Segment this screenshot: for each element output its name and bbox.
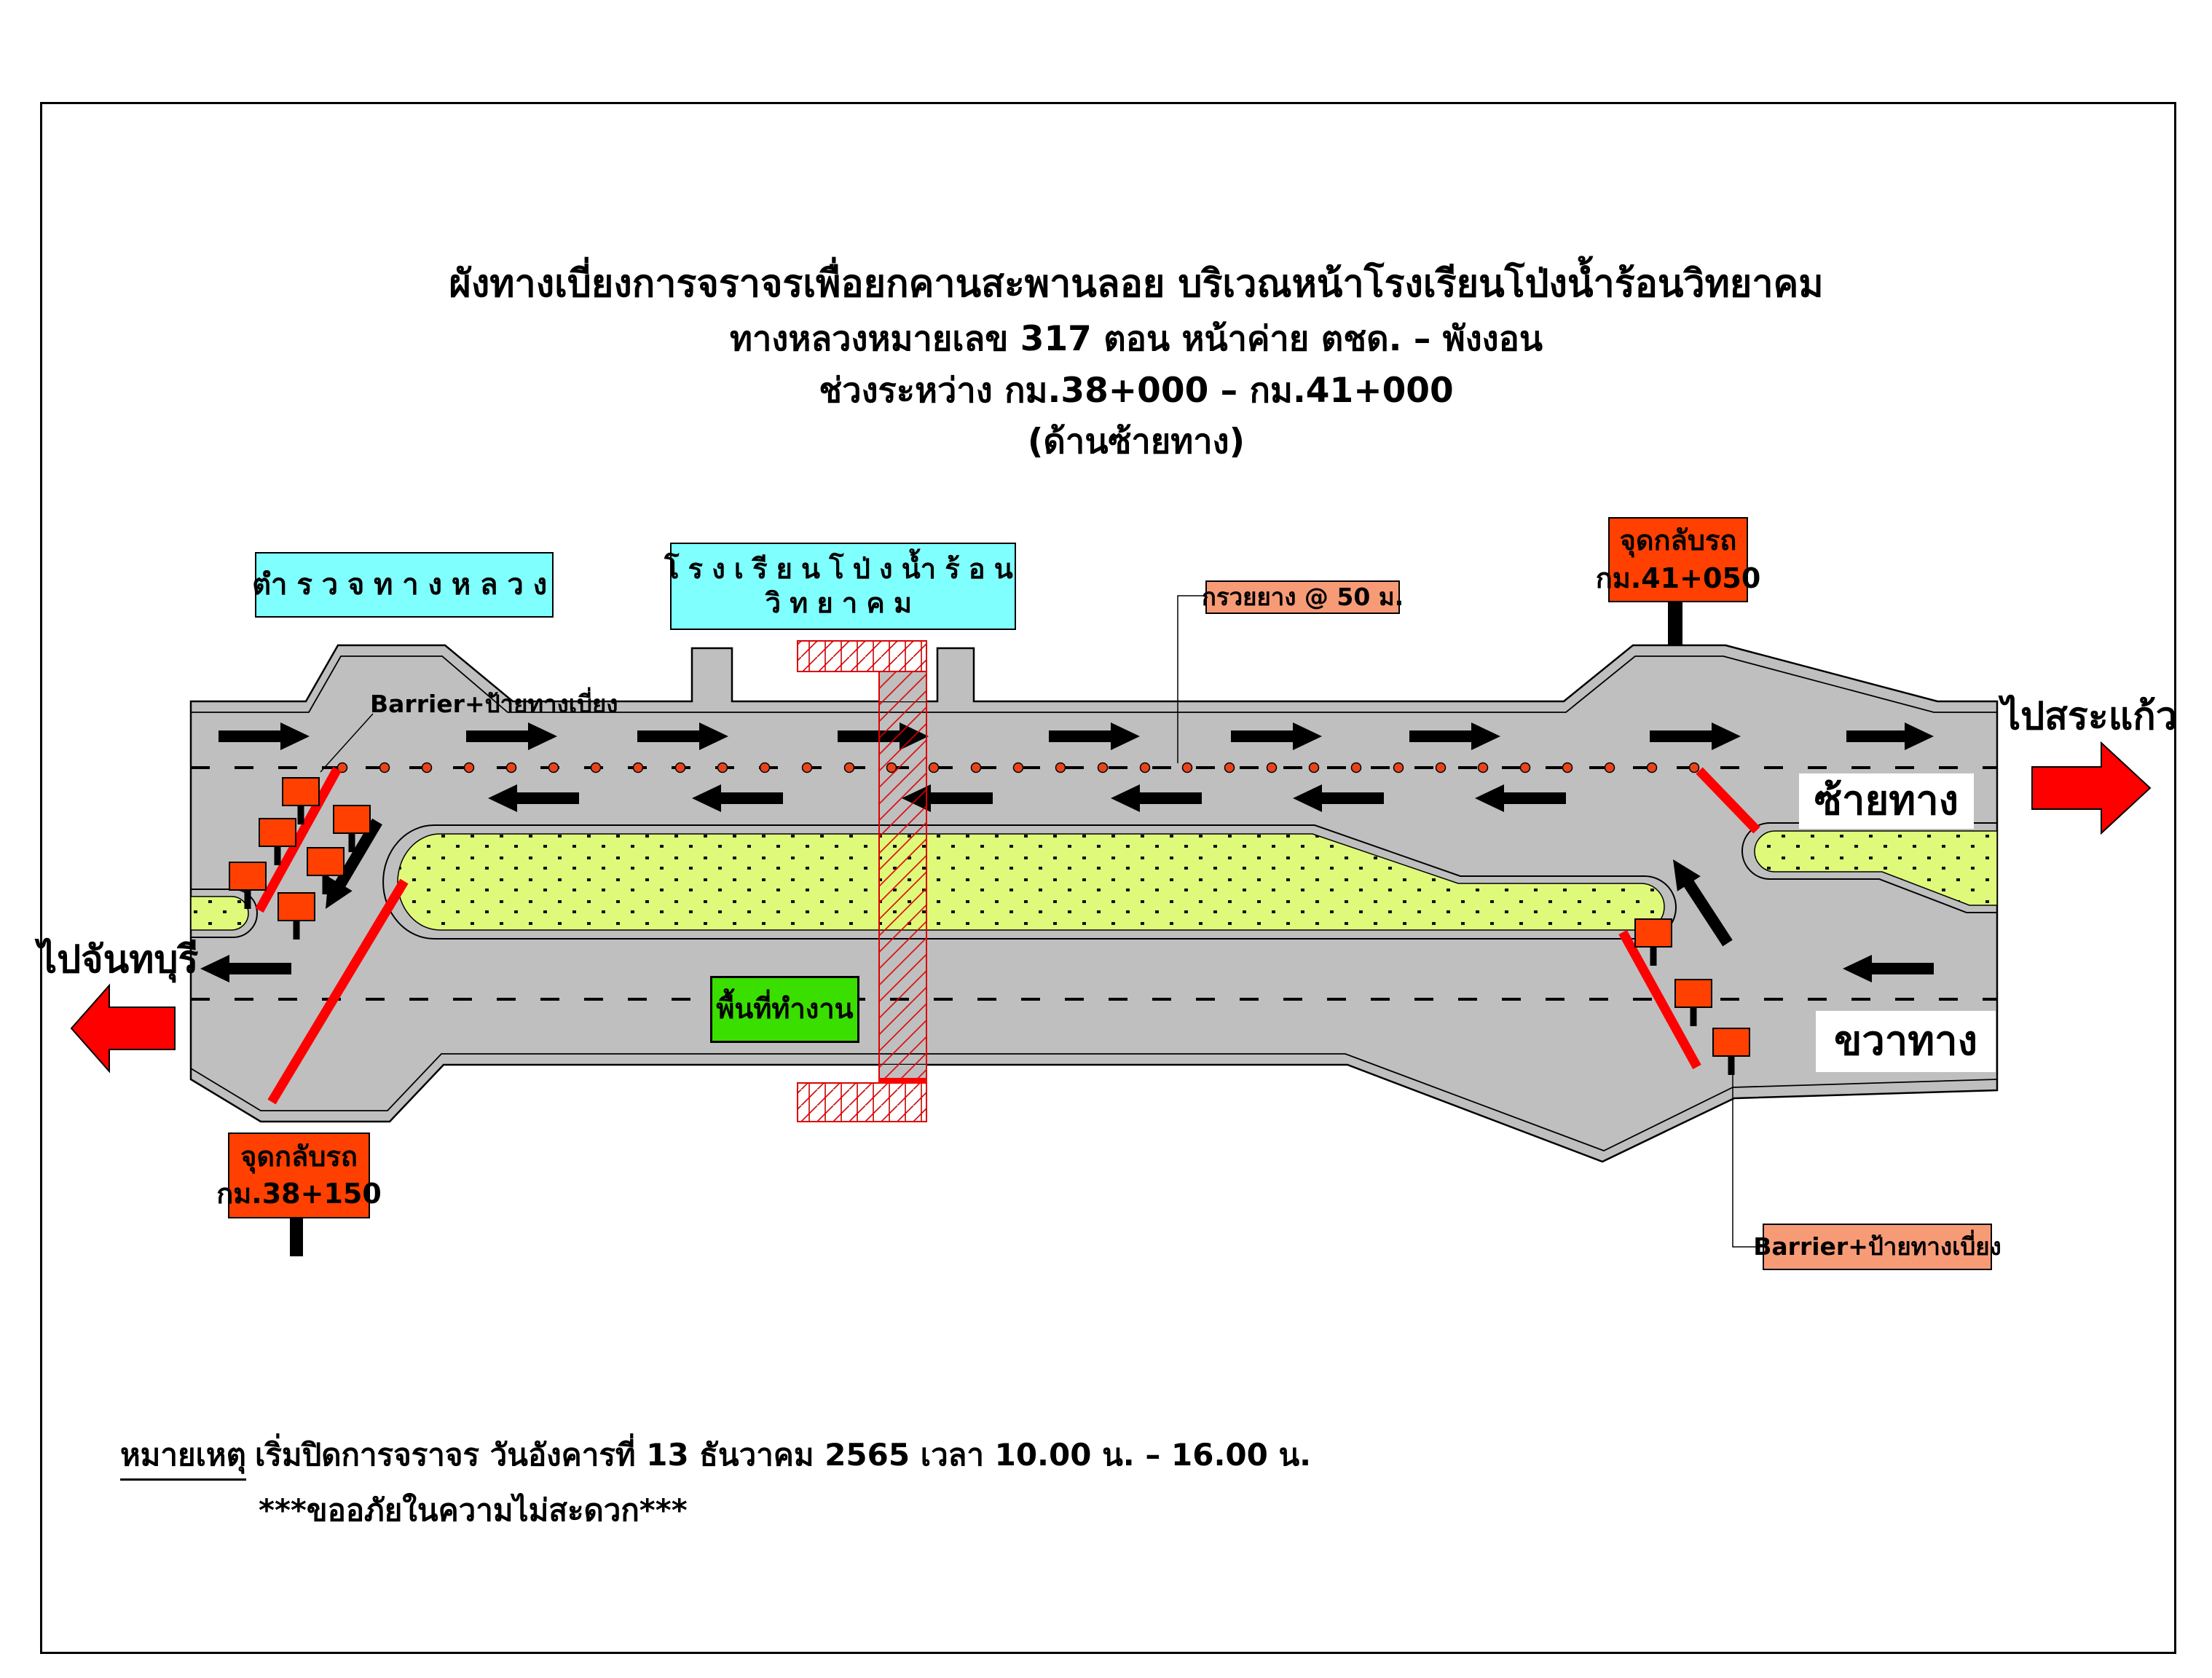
police-sign: ตำรวจทางหลวง bbox=[255, 552, 554, 618]
traffic-cone bbox=[549, 763, 559, 773]
traffic-cone bbox=[380, 763, 390, 773]
traffic-cone bbox=[1521, 763, 1530, 773]
work-area-label: พื้นที่ทำงาน bbox=[716, 992, 853, 1027]
traffic-cone bbox=[803, 763, 812, 773]
detour-sign-post bbox=[323, 874, 329, 894]
uturn-left-sign-post bbox=[290, 1218, 303, 1256]
notes-heading: หมายเหตุ bbox=[120, 1436, 246, 1475]
notes-line1: เริ่มปิดการจราจร วันอังคารที่ 13 ธันวาคม… bbox=[255, 1436, 1311, 1475]
destination-sakaeo: ไปสระแก้ว bbox=[2002, 693, 2177, 741]
page-title-line1: ผังทางเบี่ยงการจราจรเพื่อยกคานสะพานลอย บ… bbox=[262, 261, 2010, 308]
traffic-cone bbox=[1352, 763, 1361, 773]
traffic-cone bbox=[465, 763, 474, 773]
traffic-cone bbox=[1479, 763, 1488, 773]
detour-sign bbox=[334, 805, 370, 833]
traffic-diversion-plan: ผังทางเบี่ยงการจราจรเพื่อยกคานสะพานลอย บ… bbox=[0, 0, 2212, 1678]
traffic-cone bbox=[1310, 763, 1319, 773]
traffic-cone bbox=[422, 763, 432, 773]
uturn-right-sign: จุดกลับรถ กม.41+050 bbox=[1608, 517, 1748, 602]
detour-sign-post bbox=[1728, 1055, 1735, 1075]
traffic-cone bbox=[1183, 763, 1192, 773]
traffic-cone bbox=[1098, 763, 1108, 773]
cone-callout-label: กรวยยาง @ 50 ม. bbox=[1202, 582, 1404, 612]
notes-heading-text: หมายเหตุ bbox=[120, 1437, 246, 1481]
detour-sign-post bbox=[294, 919, 300, 940]
barrier-callout-left: Barrier+ป้ายทางเบี่ยง bbox=[370, 689, 618, 719]
detour-sign-post bbox=[298, 804, 304, 824]
cone-callout: กรวยยาง @ 50 ม. bbox=[1205, 580, 1400, 614]
traffic-cone bbox=[676, 763, 685, 773]
traffic-cone bbox=[972, 763, 981, 773]
traffic-cone bbox=[1141, 763, 1150, 773]
traffic-cone bbox=[1648, 763, 1657, 773]
notes-line2: ***ขออภัยในความไม่สะดวก*** bbox=[259, 1492, 688, 1530]
right-route-label: ขวาทาง bbox=[1816, 1011, 1996, 1072]
school-sign: โรงเรียนโป่งน้ำร้อน วิทยาคม bbox=[670, 543, 1016, 630]
road-diagram bbox=[0, 0, 2212, 1678]
traffic-cone bbox=[1436, 763, 1446, 773]
detour-sign bbox=[229, 862, 266, 890]
police-sign-label: ตำรวจทางหลวง bbox=[252, 567, 556, 603]
uturn-right-line1: จุดกลับรถ bbox=[1620, 522, 1737, 559]
uturn-right-line2: กม.41+050 bbox=[1596, 560, 1761, 597]
traffic-cone bbox=[1563, 763, 1573, 773]
traffic-cone bbox=[1267, 763, 1277, 773]
detour-sign-post bbox=[349, 832, 355, 852]
barrier-callout-right: Barrier+ป้ายทางเบี่ยง bbox=[1763, 1224, 1992, 1270]
traffic-cone bbox=[591, 763, 601, 773]
traffic-cone bbox=[1605, 763, 1615, 773]
uturn-right-sign-post bbox=[1668, 602, 1682, 646]
traffic-cone bbox=[718, 763, 728, 773]
school-sign-line2: วิทยาคม bbox=[765, 586, 921, 621]
left-route-text: ซ้ายทาง bbox=[1814, 776, 1959, 827]
median-left-island bbox=[191, 897, 248, 930]
detour-sign-post bbox=[1691, 1006, 1697, 1026]
work-area-sign: พื้นที่ทำงาน bbox=[710, 976, 859, 1043]
detour-sign bbox=[1675, 980, 1712, 1007]
traffic-cone bbox=[1056, 763, 1066, 773]
destination-chanthaburi: ไปจันทบุรี bbox=[38, 937, 198, 984]
barrier-callout-right-label: Barrier+ป้ายทางเบี่ยง bbox=[1753, 1232, 2001, 1261]
traffic-cone bbox=[1014, 763, 1023, 773]
destination-arrow bbox=[2032, 743, 2150, 833]
traffic-cone bbox=[845, 763, 854, 773]
page-title-line2: ทางหลวงหมายเลข 317 ตอน หน้าค่าย ตชด. – พ… bbox=[262, 318, 2010, 361]
page-title-line4: (ด้านซ้ายทาง) bbox=[262, 421, 2010, 464]
detour-sign bbox=[1635, 919, 1672, 947]
traffic-cone bbox=[634, 763, 643, 773]
detour-sign-post bbox=[1650, 945, 1657, 966]
detour-sign bbox=[278, 893, 315, 921]
destination-arrow bbox=[71, 985, 175, 1071]
detour-sign bbox=[1713, 1028, 1749, 1056]
school-sign-line1: โรงเรียนโป่งน้ำร้อน bbox=[664, 552, 1022, 587]
uturn-left-sign: จุดกลับรถ กม.38+150 bbox=[228, 1133, 370, 1218]
detour-sign bbox=[307, 848, 344, 875]
traffic-cone bbox=[1690, 763, 1699, 773]
detour-sign-post bbox=[245, 889, 251, 909]
right-route-text: ขวาทาง bbox=[1834, 1016, 1977, 1067]
page-title-line3: ช่วงระหว่าง กม.38+000 – กม.41+000 bbox=[262, 370, 2010, 413]
footbridge-span-hatch bbox=[879, 671, 926, 1107]
traffic-cone bbox=[1394, 763, 1404, 773]
traffic-cone bbox=[1225, 763, 1235, 773]
uturn-left-line2: กม.38+150 bbox=[216, 1175, 382, 1213]
uturn-left-line1: จุดกลับรถ bbox=[240, 1138, 358, 1175]
detour-sign bbox=[283, 778, 319, 805]
left-route-label: ซ้ายทาง bbox=[1799, 773, 1974, 829]
traffic-cone bbox=[929, 763, 939, 773]
traffic-cone bbox=[760, 763, 770, 773]
traffic-cone bbox=[507, 763, 516, 773]
detour-sign bbox=[259, 819, 296, 846]
detour-sign-post bbox=[275, 845, 281, 865]
